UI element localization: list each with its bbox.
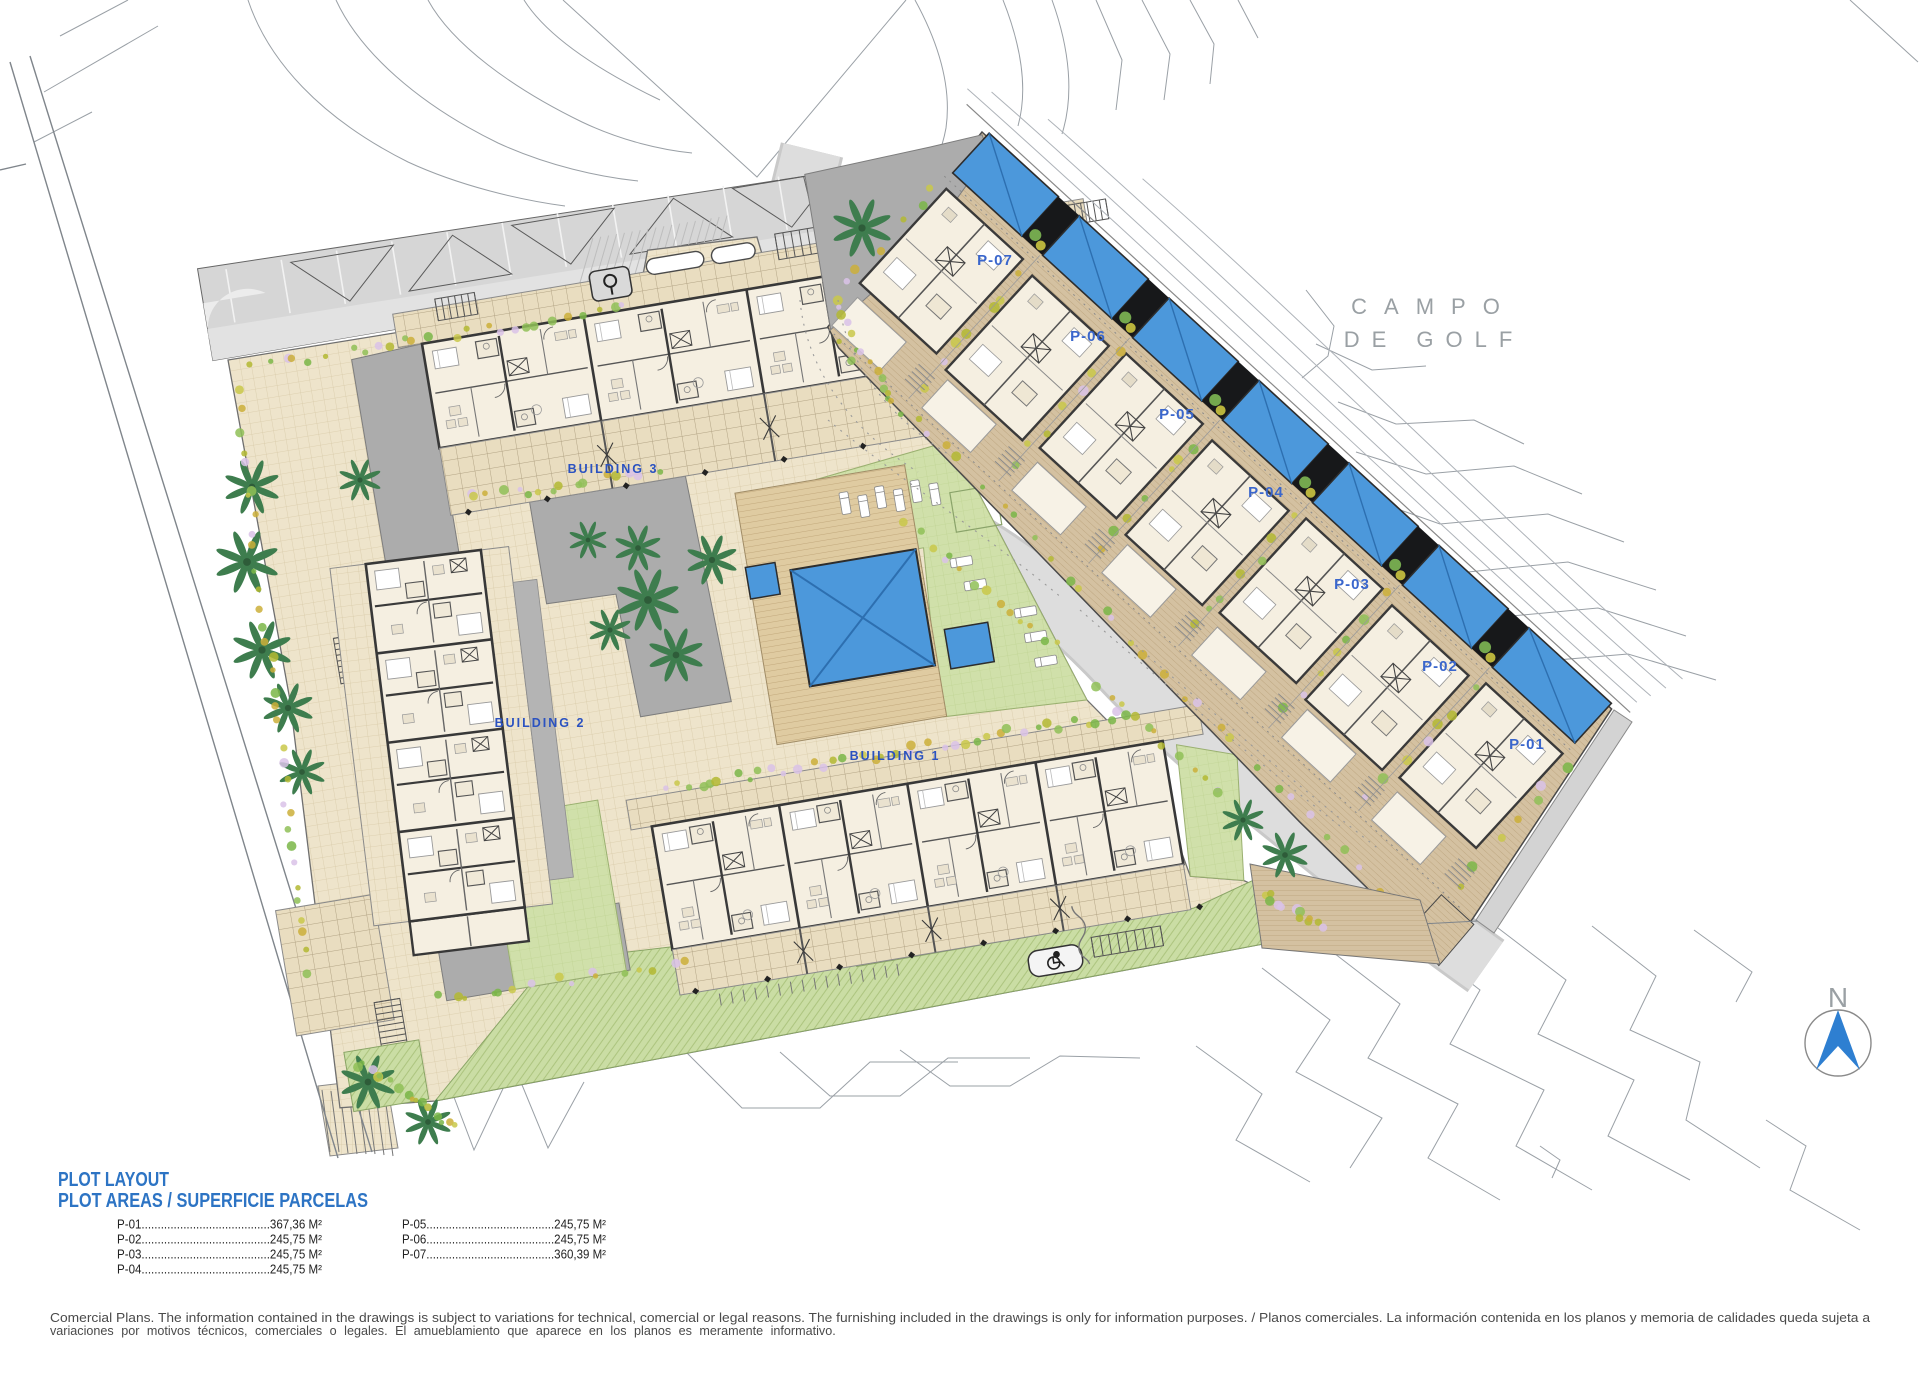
svg-text:P-06: P-06 [1070, 328, 1106, 345]
svg-text:BUILDING 3: BUILDING 3 [568, 462, 659, 476]
svg-text:P-05..........................: P-05....................................… [402, 1217, 607, 1232]
svg-text:BUILDING 2: BUILDING 2 [495, 716, 586, 730]
svg-text:P-03..........................: P-03....................................… [117, 1247, 323, 1262]
svg-text:P-02: P-02 [1422, 658, 1458, 675]
svg-text:P-05: P-05 [1159, 406, 1195, 423]
svg-text:P-04..........................: P-04....................................… [117, 1262, 323, 1277]
svg-text:N: N [1828, 982, 1848, 1013]
svg-text:PLOT AREAS / SUPERFICIE PARCEL: PLOT AREAS / SUPERFICIE PARCELAS [58, 1190, 368, 1212]
svg-text:P-04: P-04 [1248, 484, 1284, 501]
svg-text:P-07..........................: P-07....................................… [402, 1247, 607, 1262]
svg-text:P-06..........................: P-06....................................… [402, 1232, 607, 1247]
svg-text:P-02..........................: P-02....................................… [117, 1232, 323, 1247]
svg-text:Comercial Plans. The informati: Comercial Plans. The information contain… [50, 1311, 1870, 1325]
svg-text:P-01: P-01 [1509, 736, 1545, 753]
svg-text:CAMPO: CAMPO [1351, 294, 1517, 319]
svg-text:P-07: P-07 [977, 252, 1013, 269]
svg-text:BUILDING 1: BUILDING 1 [850, 749, 941, 763]
svg-text:DE GOLF: DE GOLF [1344, 327, 1525, 352]
svg-text:variaciones por motivos técnic: variaciones por motivos técnicos, comerc… [50, 1324, 836, 1338]
svg-text:P-01..........................: P-01....................................… [117, 1217, 323, 1232]
svg-text:P-03: P-03 [1334, 576, 1370, 593]
svg-text:PLOT LAYOUT: PLOT LAYOUT [58, 1169, 169, 1191]
